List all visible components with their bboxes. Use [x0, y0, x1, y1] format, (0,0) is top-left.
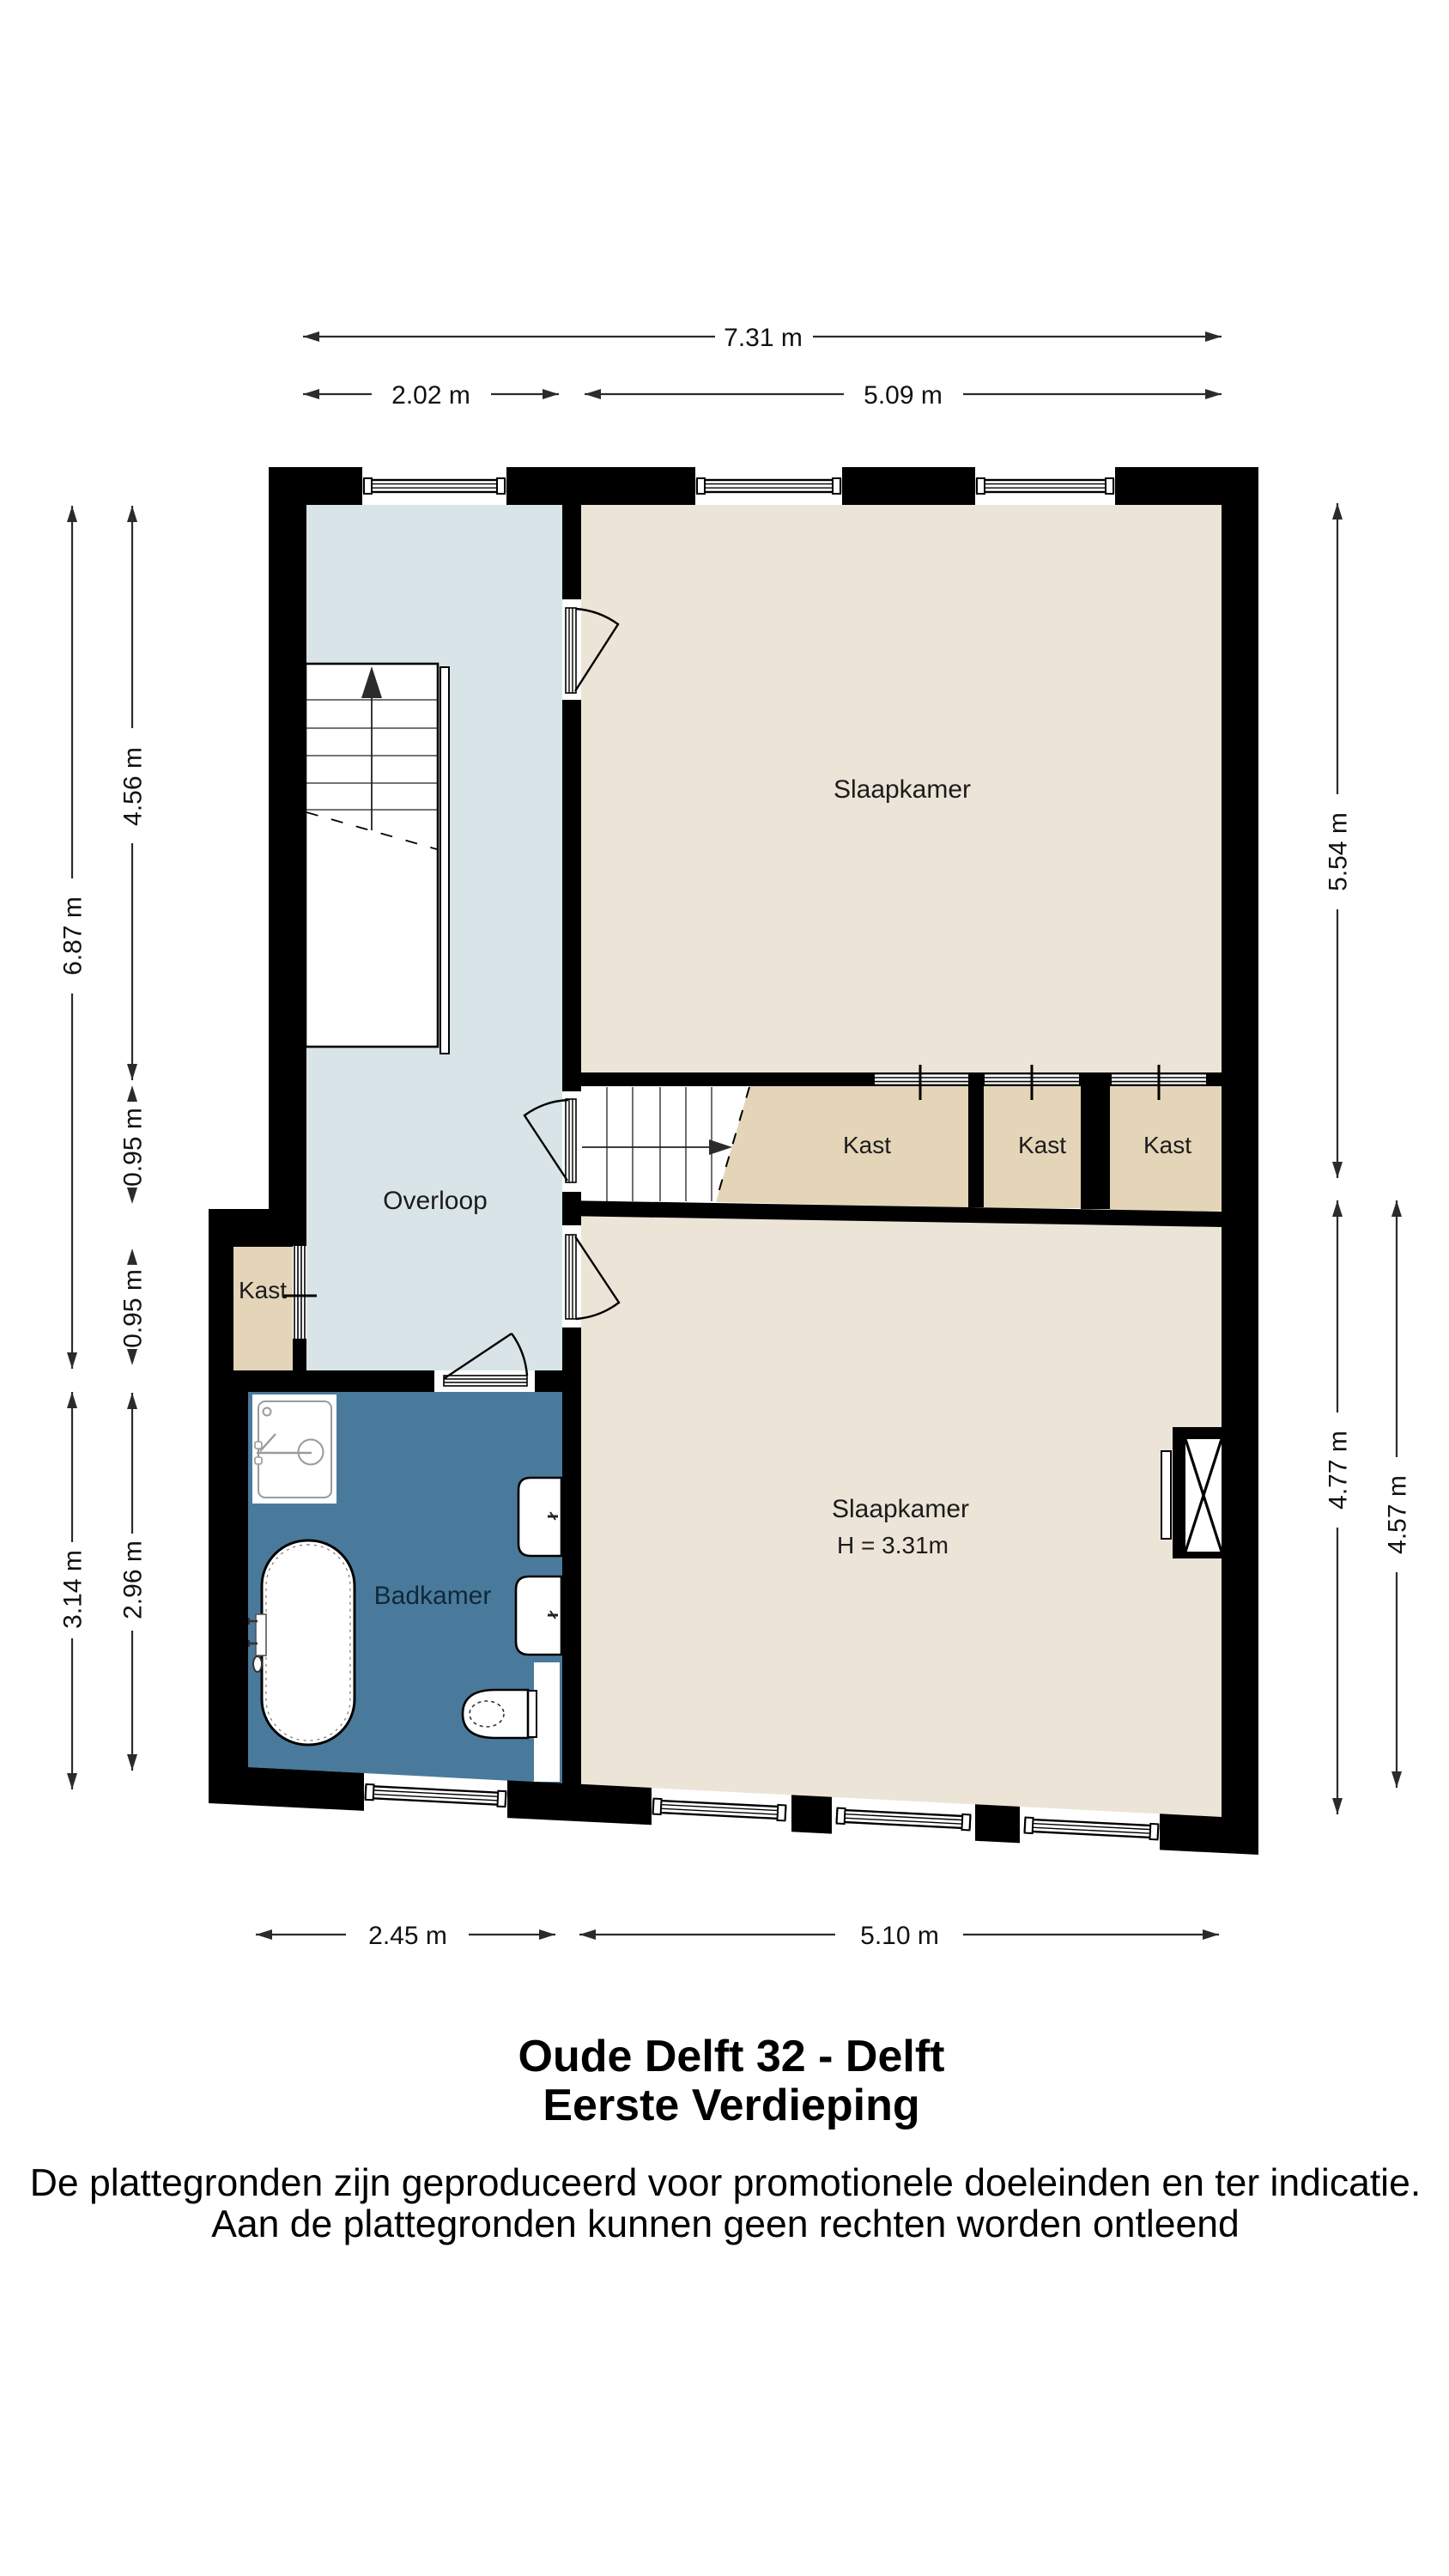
svg-text:Overloop: Overloop [383, 1187, 488, 1215]
svg-text:0.95 m: 0.95 m [119, 1108, 148, 1187]
svg-text:3.14 m: 3.14 m [59, 1550, 88, 1629]
svg-text:2.02 m: 2.02 m [391, 381, 470, 410]
svg-text:Kast: Kast [1143, 1132, 1191, 1158]
svg-text:2.96 m: 2.96 m [119, 1540, 148, 1619]
svg-text:4.57 m: 4.57 m [1384, 1475, 1412, 1554]
svg-text:Kast: Kast [843, 1132, 891, 1158]
svg-text:7.31 m: 7.31 m [724, 324, 803, 352]
svg-text:Kast: Kast [239, 1277, 287, 1303]
svg-text:5.09 m: 5.09 m [864, 381, 943, 410]
svg-text:De plattegronden zijn geproduc: De plattegronden zijn geproduceerd voor … [30, 2162, 1421, 2204]
svg-text:5.10 m: 5.10 m [860, 1922, 939, 1950]
svg-text:H = 3.31m: H = 3.31m [837, 1532, 949, 1558]
svg-text:4.56 m: 4.56 m [119, 747, 148, 826]
svg-text:6.87 m: 6.87 m [59, 896, 88, 975]
svg-text:Aan de plattegronden kunnen ge: Aan de plattegronden kunnen geen rechten… [211, 2203, 1240, 2245]
svg-text:4.77 m: 4.77 m [1325, 1431, 1353, 1510]
svg-text:Eerste Verdieping: Eerste Verdieping [543, 2081, 919, 2130]
svg-text:5.54 m: 5.54 m [1325, 812, 1353, 891]
svg-text:Slaapkamer: Slaapkamer [834, 775, 971, 804]
svg-text:Badkamer: Badkamer [374, 1582, 492, 1610]
svg-text:Slaapkamer: Slaapkamer [832, 1495, 969, 1523]
svg-text:Oude Delft 32 - Delft: Oude Delft 32 - Delft [518, 2032, 945, 2081]
svg-text:2.45 m: 2.45 m [368, 1922, 447, 1950]
svg-text:0.95 m: 0.95 m [119, 1269, 148, 1348]
svg-text:Kast: Kast [1018, 1132, 1066, 1158]
